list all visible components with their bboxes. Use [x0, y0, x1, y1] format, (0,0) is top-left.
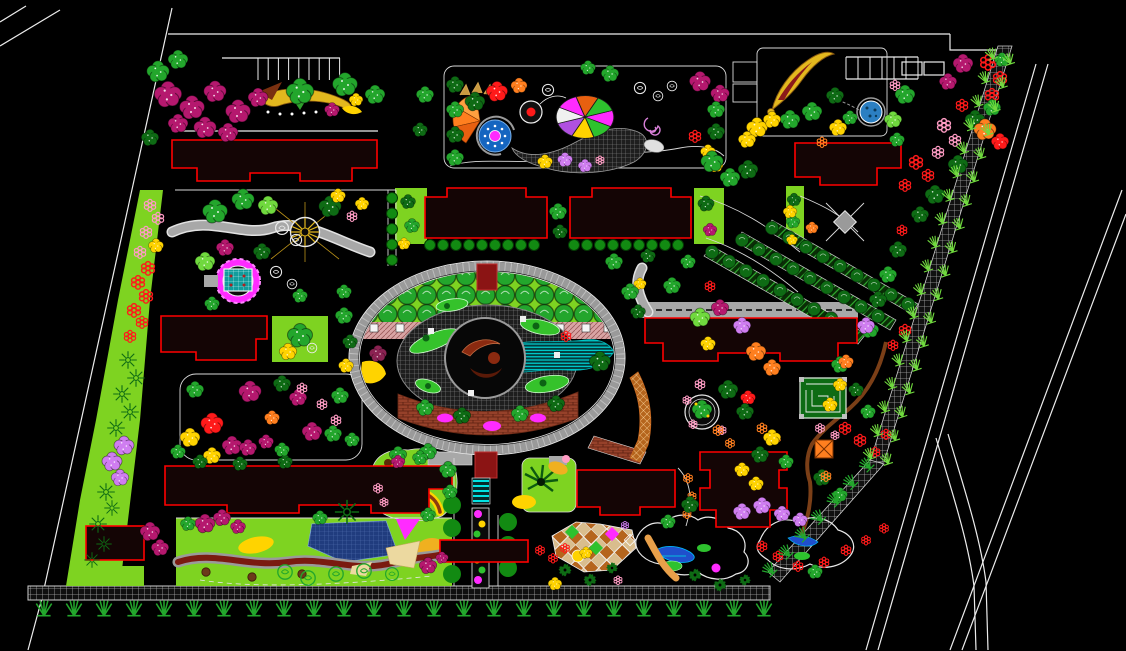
plaza-tree — [398, 305, 417, 324]
round-pond — [857, 98, 885, 126]
hedge-bush — [647, 240, 658, 251]
lane-tree — [705, 245, 719, 259]
hedge-bush — [438, 240, 449, 251]
lane-tree — [871, 309, 885, 323]
lane-tree — [790, 293, 804, 307]
zebra-crosswalk — [472, 478, 490, 504]
plaza-tree — [555, 305, 574, 324]
hedge-bush — [490, 240, 501, 251]
hedge-bush — [503, 240, 514, 251]
center-pool — [445, 318, 525, 398]
lane-tree — [769, 252, 783, 266]
hedge-bush — [569, 240, 580, 251]
plaza-south-entry — [475, 452, 497, 478]
lane-tree — [807, 302, 821, 316]
lane-tree — [722, 255, 736, 269]
lane-tree — [756, 274, 770, 288]
site-plan-canvas[interactable] — [0, 0, 1126, 651]
lane-tree — [854, 300, 868, 314]
lane-tree — [850, 269, 864, 283]
lane-tree — [803, 271, 817, 285]
lane-tree — [833, 259, 847, 273]
plaza-north-entry — [477, 264, 497, 290]
lane-tree — [786, 262, 800, 276]
hedge-bush — [464, 240, 475, 251]
hedge-bush — [516, 240, 527, 251]
cad-viewport — [0, 0, 1126, 651]
lane-tree — [799, 240, 813, 254]
lane-tree — [816, 250, 830, 264]
lane-tree — [752, 243, 766, 257]
hedge-bush — [451, 240, 462, 251]
hedge-bush — [595, 240, 606, 251]
hedge-bush — [660, 240, 671, 251]
hedge-bush — [673, 240, 684, 251]
plaza-tree — [417, 286, 436, 305]
plaza-tree — [515, 286, 534, 305]
orange-square-pavilion — [815, 440, 833, 458]
lane-tree — [773, 283, 787, 297]
hedge-bush — [425, 240, 436, 251]
hedge-bush — [634, 240, 645, 251]
hedge-bush — [582, 240, 593, 251]
lane-tree — [867, 278, 881, 292]
hedge-bush — [387, 208, 398, 219]
hedge-bush — [387, 224, 398, 235]
lane-tree — [739, 264, 753, 278]
hedge-bush — [621, 240, 632, 251]
hedge-bush — [529, 240, 540, 251]
hedge-bush — [387, 239, 398, 250]
bottom-wall-hatched — [28, 586, 770, 600]
hedge-bush — [387, 193, 398, 204]
entrance-gate-building — [440, 540, 528, 562]
hedge-bush — [477, 240, 488, 251]
lane-tree — [765, 221, 779, 235]
hedge-bush — [608, 240, 619, 251]
plaza-tree — [496, 286, 515, 305]
lane-tree — [820, 281, 834, 295]
building-small-southwest — [86, 526, 144, 560]
lane-tree — [735, 233, 749, 247]
lane-tree — [837, 290, 851, 304]
plaza-tree — [535, 286, 554, 305]
hedge-bush — [387, 255, 398, 266]
